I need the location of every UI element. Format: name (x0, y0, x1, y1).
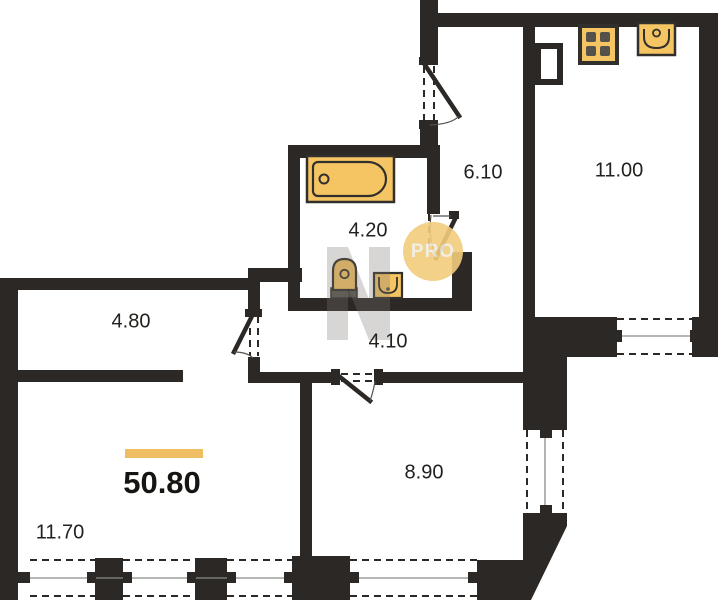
room-label-hall: 4.80 (112, 311, 151, 334)
pro-watermark-badge: PRO (403, 222, 463, 281)
bedroom-door (331, 369, 383, 401)
room-label-kitchen: 11.00 (595, 160, 644, 183)
stove-icon (580, 26, 617, 63)
room-label-corridor: 4.10 (369, 331, 408, 354)
watermark-logo (327, 247, 390, 340)
entry-door (419, 57, 459, 129)
vent-duct (538, 46, 560, 82)
kitchen-window (611, 319, 701, 354)
room-label-hallway: 6.10 (464, 162, 503, 185)
hall-door (234, 309, 262, 358)
floor-plan: 6.10 11.00 4.20 4.10 4.80 8.90 11.70 50.… (0, 0, 719, 600)
floor-plan-canvas (0, 0, 719, 600)
room-label-living-room: 11.70 (36, 522, 85, 545)
room-label-bedroom: 8.90 (405, 462, 444, 485)
kitchen-sink-icon (638, 23, 675, 55)
pro-watermark-text: PRO (411, 241, 455, 263)
room-label-bathroom: 4.20 (349, 220, 388, 243)
total-area-label: 50.80 (123, 465, 201, 501)
total-area-accent-bar (125, 449, 203, 458)
bottom-windows (18, 560, 477, 596)
bedroom-side-window (527, 430, 563, 513)
bathtub-icon (307, 156, 394, 202)
